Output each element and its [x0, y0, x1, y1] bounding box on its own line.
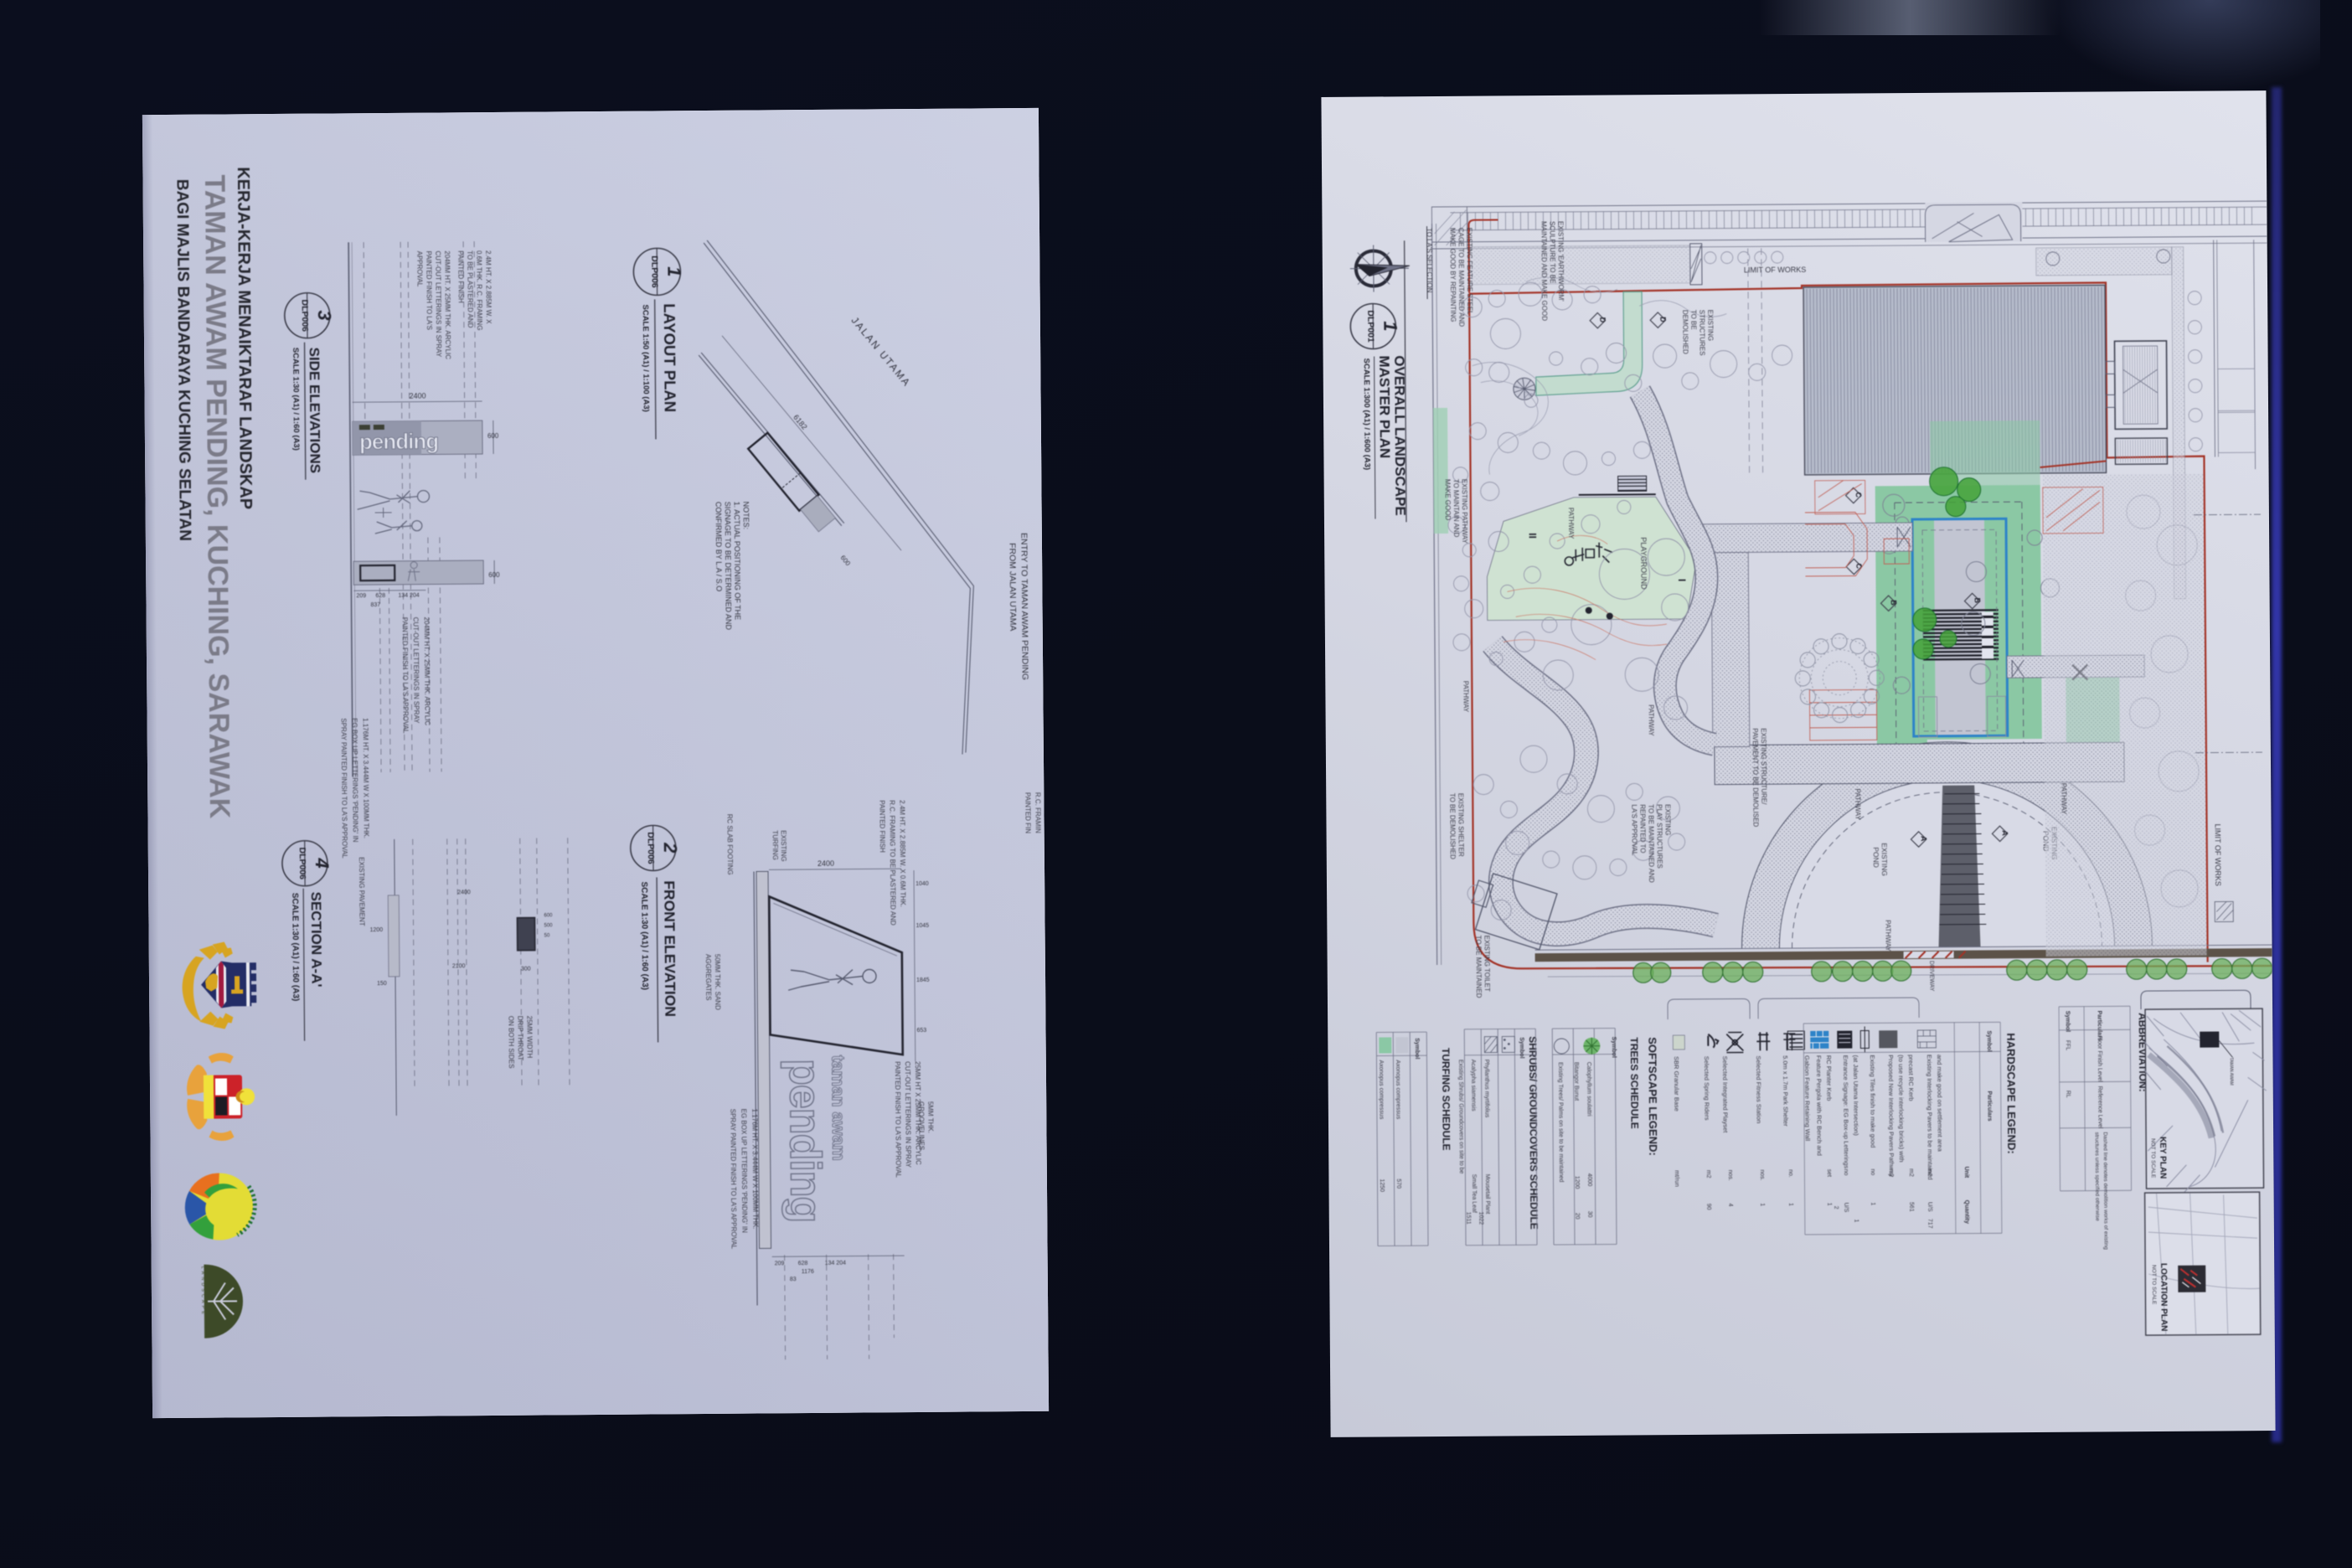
svg-text:50MM THK. SAND: 50MM THK. SAND [714, 954, 722, 1010]
svg-text:C: C [1854, 492, 1863, 498]
svg-text:EG BOX UP LETTERINGS 'PENDING': EG BOX UP LETTERINGS 'PENDING' IN [740, 1109, 748, 1234]
svg-text:1.176M HT. X 3.444M W X 100MM: 1.176M HT. X 3.444M W X 100MM THK. [361, 718, 369, 838]
svg-text:A: A [1920, 836, 1928, 842]
svg-text:EXISTING: EXISTING [1663, 804, 1671, 835]
svg-text:POND: POND [1872, 847, 1880, 868]
svg-text:SIGNAGE TO BE DETERMINED AND: SIGNAGE TO BE DETERMINED AND [724, 502, 733, 631]
svg-text:TO BE MAINTAINED: TO BE MAINTAINED [1474, 936, 1483, 998]
svg-text:1511: 1511 [1465, 1212, 1471, 1225]
svg-text:NOT TO SCALE: NOT TO SCALE [2150, 1138, 2156, 1179]
svg-text:PATHWAY: PATHWAY [1647, 704, 1654, 736]
svg-text:EXISTING SHELTER: EXISTING SHELTER [1457, 793, 1465, 857]
svg-text:600: 600 [839, 554, 853, 567]
svg-text:REPAINTED TO: REPAINTED TO [1638, 804, 1646, 853]
svg-text:1: 1 [1870, 1202, 1875, 1205]
svg-text:1040: 1040 [916, 881, 929, 887]
svg-text:DEMOLISHED: DEMOLISHED [1681, 310, 1689, 354]
svg-text:5MM THK.: 5MM THK. [926, 1101, 934, 1133]
svg-text:DLP006: DLP006 [300, 299, 310, 332]
svg-text:LA'S APPROVAL: LA'S APPROVAL [1630, 804, 1638, 856]
svg-text:NOT TO SCALE: NOT TO SCALE [2151, 1265, 2157, 1305]
svg-text:LAYOUT PLAN: LAYOUT PLAN [661, 303, 679, 412]
svg-text:HARDSCAPE LEGEND:: HARDSCAPE LEGEND: [2004, 1033, 2018, 1154]
svg-text:1: 1 [663, 266, 684, 276]
svg-text:717: 717 [1926, 1219, 1932, 1229]
svg-text:PLAY STRUCTURES: PLAY STRUCTURES [1655, 804, 1663, 869]
svg-text:PAINTED FINISH TO LA'S: PAINTED FINISH TO LA'S [425, 251, 433, 331]
svg-text:3: 3 [314, 310, 335, 320]
svg-text:SCALE 1:300 (A1) / 1:600 (A3): SCALE 1:300 (A1) / 1:600 (A3) [1362, 358, 1372, 471]
svg-text:1200: 1200 [1574, 1176, 1580, 1189]
svg-text:JALAN UTAMA: JALAN UTAMA [849, 315, 914, 389]
svg-text:600: 600 [544, 913, 553, 918]
svg-text:Phyllanthus myrtifolius: Phyllanthus myrtifolius [1483, 1060, 1489, 1118]
svg-text:83: 83 [790, 1277, 797, 1282]
svg-text:EXISTING PATHWAY: EXISTING PATHWAY [1460, 479, 1468, 544]
svg-text:LIMIT OF WORKS: LIMIT OF WORKS [1744, 266, 1806, 275]
svg-text:1: 1 [1759, 1203, 1765, 1206]
svg-text:B: B [1973, 597, 1982, 603]
svg-text:TO BE DEMOLISHED: TO BE DEMOLISHED [1448, 793, 1457, 859]
svg-text:SPRAY PAINTED FINISH TO LA'S A: SPRAY PAINTED FINISH TO LA'S APPROVAL [339, 718, 348, 859]
svg-text:570: 570 [1395, 1179, 1401, 1189]
svg-text:PATHWAY: PATHWAY [1854, 788, 1861, 820]
svg-text:precast RC Kerb: precast RC Kerb [1907, 1055, 1915, 1101]
svg-text:204MM HT. X 25MM THK. ARCYLIC: 204MM HT. X 25MM THK. ARCYLIC [443, 250, 451, 359]
svg-text:4000: 4000 [1586, 1173, 1592, 1187]
svg-text:837: 837 [370, 602, 380, 608]
svg-text:2.4M HT. X 2.885M W. X 0.6M TH: 2.4M HT. X 2.885M W. X 0.6M THK. [898, 800, 906, 907]
svg-text:0.6M THK. R.C. FRAMING: 0.6M THK. R.C. FRAMING [475, 250, 483, 330]
svg-text:MAKE GOOD: MAKE GOOD [1443, 479, 1451, 521]
svg-text:SIDE ELEVATIONS: SIDE ELEVATIONS [307, 348, 323, 474]
svg-text:600: 600 [487, 432, 499, 440]
svg-text:25MM WIDTH: 25MM WIDTH [525, 1016, 533, 1059]
svg-text:D: D [1598, 317, 1607, 323]
svg-text:2.4M HT. X 2.885M W. X: 2.4M HT. X 2.885M W. X [484, 250, 493, 324]
svg-text:Entrance Signage: EG Box-up Le: Entrance Signage: EG Box-up Letterings [1842, 1055, 1850, 1169]
svg-text:SCALE 1:30 (A1) / 1:60 (A3): SCALE 1:30 (A1) / 1:60 (A3) [291, 348, 301, 451]
svg-text:CUT-OUT LETTERINGS IN SPRAY: CUT-OUT LETTERINGS IN SPRAY [434, 250, 442, 358]
svg-text:Mousetail Plant: Mousetail Plant [1484, 1174, 1490, 1215]
svg-text:4: 4 [312, 857, 333, 868]
svg-text:PAINTED FINISH: PAINTED FINISH [878, 800, 885, 853]
svg-text:SOFTSCAPE LEGEND:: SOFTSCAPE LEGEND: [1646, 1037, 1659, 1156]
svg-text:EG BOX UP LETTERINGS 'PENDING': EG BOX UP LETTERINGS 'PENDING' IN [350, 718, 358, 843]
svg-text:90: 90 [1705, 1204, 1711, 1210]
svg-text:209: 209 [775, 1261, 785, 1266]
svg-text:U/S: U/S [1926, 1202, 1932, 1212]
svg-text:STRUCTURES: STRUCTURES [1698, 310, 1705, 356]
svg-text:SPRAY PAINTED FINISH TO LA'S A: SPRAY PAINTED FINISH TO LA'S APPROVAL [729, 1109, 737, 1250]
svg-text:Selected Fitness Station: Selected Fitness Station [1755, 1055, 1763, 1123]
svg-text:1: 1 [1853, 1220, 1859, 1223]
svg-text:50: 50 [544, 933, 550, 938]
svg-text:structures unless specified ot: structures unless specified otherwise [2093, 1132, 2100, 1222]
svg-text:TAMAN AWAM: TAMAN AWAM [2229, 1057, 2234, 1085]
svg-text:500: 500 [544, 923, 554, 928]
svg-text:628: 628 [375, 593, 385, 599]
svg-text:SECTION A-A': SECTION A-A' [308, 892, 325, 988]
svg-text:PATHWAY: PATHWAY [1567, 508, 1575, 539]
svg-text:2400: 2400 [457, 890, 471, 895]
svg-text:Axonopus compressus: Axonopus compressus [1378, 1060, 1384, 1119]
svg-text:mt/run: mt/run [1674, 1170, 1679, 1187]
svg-text:taman awam: taman awam [828, 1055, 848, 1161]
svg-text:PAINTED FINISH TO LA'S APPROVA: PAINTED FINISH TO LA'S APPROVAL [400, 617, 409, 734]
svg-text:set: set [1826, 1169, 1832, 1177]
svg-text:FROM JALAN UTAMA: FROM JALAN UTAMA [1007, 543, 1018, 631]
svg-text:KERJA-KERJA MENAIKTARAF LANDSK: KERJA-KERJA MENAIKTARAF LANDSKAP [234, 167, 255, 509]
svg-text:RC Planter Kerb: RC Planter Kerb [1825, 1055, 1833, 1101]
svg-text:1: 1 [1787, 1203, 1793, 1206]
svg-text:I: I [1676, 579, 1688, 581]
svg-text:A: A [2001, 830, 2009, 836]
svg-text:CUT-OUT LETTERINGS IN SPRAY: CUT-OUT LETTERINGS IN SPRAY [411, 617, 420, 725]
svg-text:TO BE PLASTERED AND: TO BE PLASTERED AND [466, 250, 474, 328]
svg-text:653: 653 [916, 1028, 926, 1034]
svg-text:1.176M HT. X 3.444M W X 100MM: 1.176M HT. X 3.444M W X 100MM THK. [750, 1108, 759, 1229]
svg-text:nos.: nos. [1759, 1169, 1765, 1180]
svg-text:1: 1 [1380, 321, 1400, 331]
svg-text:BAGI MAJLIS BANDARAYA KUCHING: BAGI MAJLIS BANDARAYA KUCHING SELATAN [173, 179, 193, 541]
svg-text:Feature Pergola with RC Bench: Feature Pergola with RC Bench and [1815, 1055, 1823, 1156]
svg-text:APPROVAL: APPROVAL [415, 251, 423, 287]
svg-text:Existing Tiles finish to make: Existing Tiles finish to make good [1869, 1055, 1877, 1148]
svg-text:PAINTED FINISH: PAINTED FINISH [456, 250, 464, 303]
svg-text:Selected Spring Riders: Selected Spring Riders [1703, 1056, 1711, 1121]
svg-text:30: 30 [1586, 1211, 1592, 1218]
svg-text:1200: 1200 [370, 927, 384, 933]
svg-text:DRIP THROAT: DRIP THROAT [516, 1016, 524, 1061]
svg-text:Selected Integrated Playset: Selected Integrated Playset [1721, 1056, 1730, 1134]
svg-text:AGGREGATES: AGGREGATES [704, 954, 712, 1000]
svg-text:Existing Interlocking Pavers t: Existing Interlocking Pavers to be maint… [1926, 1055, 1934, 1180]
svg-text:FRONT ELEVATION: FRONT ELEVATION [661, 880, 678, 1017]
svg-text:DLP006: DLP006 [297, 847, 307, 879]
svg-text:NOTES:: NOTES: [742, 502, 750, 530]
svg-text:PAINTED FIN: PAINTED FIN [1024, 792, 1031, 833]
svg-text:TURFING: TURFING [771, 830, 778, 860]
svg-text:1: 1 [1826, 1203, 1832, 1206]
svg-text:pending: pending [780, 1059, 830, 1223]
svg-text:no.: no. [1787, 1169, 1793, 1178]
svg-text:EXISTING: EXISTING [1706, 310, 1714, 341]
svg-text:Symbol: Symbol [1611, 1037, 1617, 1058]
svg-text:4: 4 [1727, 1204, 1733, 1207]
svg-text:150: 150 [377, 981, 387, 987]
svg-text:2: 2 [660, 842, 681, 854]
svg-text:pending: pending [359, 428, 438, 454]
svg-text:Particulars: Particulars [1986, 1091, 1992, 1121]
svg-text:DLP006: DLP006 [649, 255, 659, 288]
svg-text:TURFING SCHEDULE: TURFING SCHEDULE [1440, 1048, 1452, 1151]
svg-text:no: no [1843, 1169, 1849, 1176]
svg-text:204MM HT. X 25MM THK. ARCYLIC: 204MM HT. X 25MM THK. ARCYLIC [422, 617, 431, 726]
svg-text:m2: m2 [1888, 1168, 1894, 1177]
svg-text:MAKE GOOD BY REPAINTING: MAKE GOOD BY REPAINTING [1448, 228, 1457, 322]
svg-text:TO BE: TO BE [1689, 310, 1697, 330]
svg-text:LANDSCAPE: LANDSCAPE [200, 1266, 205, 1317]
svg-text:m2: m2 [1926, 1168, 1932, 1177]
svg-text:RL: RL [2065, 1091, 2071, 1098]
svg-text:Calophyllum soulattri: Calophyllum soulattri [1586, 1062, 1591, 1117]
svg-text:SCALE 1:50 (A1) / 1:100 (A3): SCALE 1:50 (A1) / 1:100 (A3) [641, 304, 651, 411]
svg-text:25MM HT X 25MM THK. ARCYLIC: 25MM HT X 25MM THK. ARCYLIC [914, 1061, 922, 1165]
svg-text:R.C. FRAMING TO BE PLASTERED A: R.C. FRAMING TO BE PLASTERED AND [888, 800, 896, 926]
svg-text:EXISTING TOILET: EXISTING TOILET [1483, 936, 1490, 992]
svg-text:SCULPTURE TO BE: SCULPTURE TO BE [1548, 221, 1556, 283]
svg-text:nos.: nos. [1727, 1170, 1733, 1181]
svg-text:5.0m x 1.7m Park Shelter: 5.0m x 1.7m Park Shelter [1782, 1055, 1790, 1127]
svg-text:no: no [1870, 1168, 1875, 1175]
svg-text:R.C. FRAMIN: R.C. FRAMIN [1034, 792, 1041, 833]
svg-text:EXISTING FEATURE STEEL: EXISTING FEATURE STEEL [1465, 228, 1473, 315]
svg-text:ENTRY TO TAMAN AWAM PENDING: ENTRY TO TAMAN AWAM PENDING [1019, 533, 1029, 680]
svg-text:m2: m2 [1908, 1168, 1914, 1177]
svg-text:209: 209 [356, 593, 366, 599]
svg-text:DLP001: DLP001 [1365, 310, 1375, 343]
svg-text:Existing Shrubs/ Groundcovers: Existing Shrubs/ Groundcovers on site to… [1457, 1060, 1464, 1174]
svg-text:Axonopus compressus: Axonopus compressus [1395, 1060, 1400, 1119]
svg-text:2400: 2400 [818, 859, 834, 868]
svg-text:20: 20 [1574, 1213, 1580, 1220]
svg-text:SCALE 1:30 (A1) / 1:60 (A3): SCALE 1:30 (A1) / 1:60 (A3) [639, 882, 649, 991]
svg-text:RC SLAB FOOTING: RC SLAB FOOTING [725, 814, 734, 875]
svg-text:DLP006: DLP006 [646, 832, 656, 864]
svg-text:561: 561 [1908, 1202, 1914, 1212]
svg-text:Small Tea Leaf: Small Tea Leaf [1471, 1174, 1477, 1213]
svg-text:Symbol: Symbol [1519, 1037, 1524, 1058]
svg-text:SBR Granular Base: SBR Granular Base [1673, 1056, 1680, 1112]
svg-text:PAINTED FINISH TO LA'S APPROVA: PAINTED FINISH TO LA'S APPROVAL [894, 1061, 902, 1178]
svg-text:Gabion Feature Retaining Wall: Gabion Feature Retaining Wall [1803, 1055, 1812, 1142]
svg-text:MAINTAINED AND MAKE GOOD: MAINTAINED AND MAKE GOOD [1540, 221, 1548, 321]
svg-text:m2: m2 [1705, 1170, 1711, 1179]
svg-text:EXISTING: EXISTING [1880, 843, 1889, 876]
svg-text:2: 2 [1833, 1206, 1839, 1210]
svg-text:EXISTING 'EARTHWORM': EXISTING 'EARTHWORM' [1556, 221, 1565, 302]
svg-text:LIMIT OF WORKS: LIMIT OF WORKS [2214, 823, 2223, 885]
svg-text:Floor Finish Level: Floor Finish Level [2097, 1035, 2102, 1082]
svg-text:2400: 2400 [410, 392, 426, 400]
svg-text:2100: 2100 [452, 963, 466, 969]
svg-text:Dashed line denotes demolition: Dashed line denotes demolition works of … [2102, 1132, 2108, 1250]
svg-text:TO MAINTAIN AND: TO MAINTAIN AND [1452, 479, 1459, 538]
svg-text:1. ACTUAL POSITIONING OF THE: 1. ACTUAL POSITIONING OF THE [733, 502, 742, 621]
svg-text:PATHWAY: PATHWAY [1884, 920, 1891, 952]
svg-text:SCALE 1:30 (A1) / 1:60 (A3): SCALE 1:30 (A1) / 1:60 (A3) [290, 893, 300, 1002]
svg-text:II: II [1527, 533, 1539, 539]
svg-text:Acalypha siamensis: Acalypha siamensis [1470, 1060, 1476, 1112]
svg-text:Proposed New Interlocking Pave: Proposed New Interlocking Pavers Pathway [1887, 1055, 1896, 1177]
svg-text:600: 600 [488, 571, 500, 579]
svg-text:(to use recycle interlocking b: (to use recycle interlocking bricks) wit… [1897, 1055, 1906, 1162]
svg-text:U/S: U/S [1843, 1203, 1849, 1213]
svg-text:1022: 1022 [1478, 1212, 1483, 1225]
svg-text:EXISTING PAVEMENT: EXISTING PAVEMENT [358, 857, 366, 926]
svg-text:PATHWAY: PATHWAY [1462, 681, 1469, 713]
svg-text:1045: 1045 [916, 923, 930, 929]
svg-text:PLAYGROUND: PLAYGROUND [1639, 537, 1648, 590]
svg-text:DRIVEWAY: DRIVEWAY [1928, 961, 1934, 992]
svg-text:SHRUBS/ GROUNDCOVERS SCHEDULE: SHRUBS/ GROUNDCOVERS SCHEDULE [1527, 1036, 1540, 1230]
svg-text:PAVEMENT TO BE DEMOLISED: PAVEMENT TO BE DEMOLISED [1751, 728, 1760, 827]
svg-text:EXISTING: EXISTING [779, 830, 787, 861]
svg-text:CAGE TO BE MAINTAINED AND: CAGE TO BE MAINTAINED AND [1457, 228, 1465, 328]
svg-text:Existing Trees/ Palms on site: Existing Trees/ Palms on site to be main… [1557, 1062, 1564, 1183]
svg-text:PATHWAY: PATHWAY [2060, 783, 2067, 815]
svg-text:134 204: 134 204 [398, 593, 419, 599]
svg-text:134 204: 134 204 [825, 1261, 846, 1266]
svg-text:CUT-OUT LETTERINGS IN SPRAY: CUT-OUT LETTERINGS IN SPRAY [904, 1061, 912, 1168]
svg-text:(at Jalan Utama Intersection): (at Jalan Utama Intersection) [1852, 1055, 1860, 1136]
svg-text:TO BE MAINTAINED AND: TO BE MAINTAINED AND [1647, 804, 1655, 883]
svg-text:TREES SCHEDULE: TREES SCHEDULE [1628, 1037, 1641, 1128]
svg-text:Symbol: Symbol [2065, 1011, 2071, 1032]
svg-text:Unit: Unit [1963, 1167, 1969, 1179]
svg-text:300: 300 [521, 967, 531, 972]
svg-text:FFL: FFL [2065, 1040, 2071, 1051]
svg-text:2.4M HT. X: 2.4M HT. X [1044, 792, 1049, 826]
svg-text:1250: 1250 [1379, 1179, 1385, 1192]
svg-text:KEY PLAN: KEY PLAN [2158, 1137, 2167, 1179]
svg-text:B: B [1890, 600, 1898, 606]
svg-text:Symbol: Symbol [1414, 1038, 1420, 1059]
svg-text:and make good on settlement ar: and make good on settlement area [1936, 1055, 1944, 1153]
svg-text:EXISTING STRUCTURE/: EXISTING STRUCTURE/ [1760, 728, 1768, 805]
svg-text:TO LA'S SELECTION: TO LA'S SELECTION [1425, 228, 1433, 293]
svg-text:Symbol: Symbol [1986, 1030, 1992, 1051]
svg-text:Quantity: Quantity [1963, 1200, 1969, 1225]
svg-text:628: 628 [798, 1261, 808, 1266]
svg-text:CONFIRMED BY L.A / S.O: CONFIRMED BY L.A / S.O [714, 502, 724, 591]
svg-text:1845: 1845 [916, 977, 930, 983]
svg-text:MASTER PLAN: MASTER PLAN [1376, 355, 1393, 458]
svg-text:1176: 1176 [802, 1269, 814, 1275]
svg-text:LOCATION PLAN: LOCATION PLAN [2159, 1263, 2169, 1332]
svg-text:Bitangor Bunut: Bitangor Bunut [1573, 1062, 1579, 1101]
svg-text:Reference Level: Reference Level [2097, 1086, 2102, 1128]
svg-text:ON BOTH SIDES: ON BOTH SIDES [507, 1016, 514, 1069]
svg-text:TAMAN AWAM PENDING, KUCHING, S: TAMAN AWAM PENDING, KUCHING, SARAWAK [199, 174, 235, 818]
svg-text:D: D [1658, 317, 1667, 322]
